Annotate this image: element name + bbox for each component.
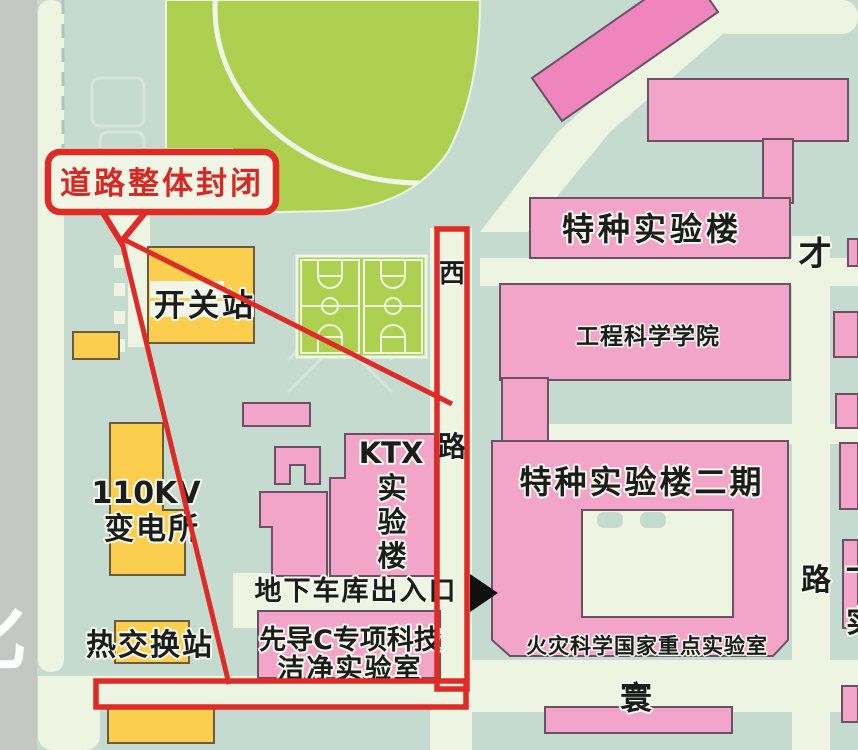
map-canvas: 特种实验楼 工程科学学院 特种实验楼二期 火灾科学国家重点实验室 KTX 实 验… bbox=[0, 0, 858, 750]
heat-exchange-label: 热交换站 bbox=[86, 628, 214, 663]
ktx-label-4: 楼 bbox=[377, 539, 406, 573]
bottom-road-right bbox=[464, 660, 858, 712]
edge-building bbox=[840, 443, 858, 509]
edge-building bbox=[834, 312, 858, 357]
west-road-char-2: 路 bbox=[438, 430, 467, 463]
fire-lab-label: 火灾科学国家重点实验室 bbox=[526, 634, 768, 658]
bottom-yellow-building bbox=[108, 706, 214, 743]
pilot-c-label-1: 先导C专项科技 bbox=[259, 625, 441, 656]
special-lab-label: 特种实验楼 bbox=[562, 210, 742, 248]
right-edge-partial-char: 实 bbox=[846, 605, 858, 640]
right-edge-road-char: 路 bbox=[801, 563, 832, 598]
basketball-courts bbox=[297, 256, 426, 357]
substation-label-2: 变电所 bbox=[104, 512, 200, 547]
road-stub bbox=[114, 311, 125, 324]
ktx-label-1: KTX bbox=[359, 436, 424, 470]
special-lab-column bbox=[763, 139, 793, 203]
special-lab-top-block bbox=[648, 79, 848, 141]
switch-station-label: 开关站 bbox=[154, 288, 256, 324]
special-lab-phase2-label: 特种实验楼二期 bbox=[519, 463, 764, 501]
edge-building bbox=[836, 394, 858, 428]
edge-building bbox=[848, 239, 858, 266]
right-edge-partial-stroke: 一 bbox=[846, 554, 858, 589]
left-vertical-road bbox=[38, 0, 64, 672]
left-road-partial-char: 化 bbox=[0, 592, 26, 680]
engineering-school-leg bbox=[502, 378, 548, 444]
engineering-school-label: 工程科学学院 bbox=[576, 323, 720, 350]
cai-road-char: 才 bbox=[799, 234, 832, 273]
road-stub bbox=[114, 283, 125, 296]
huan-road-char: 寰 bbox=[620, 679, 652, 717]
bottom-left-road bbox=[38, 695, 100, 750]
small-yellow-building bbox=[73, 332, 119, 359]
west-road-char-1: 西 bbox=[439, 259, 465, 289]
edge-building bbox=[842, 686, 858, 722]
courtyard-patch bbox=[640, 512, 666, 528]
garage-exit-label: 地下车库出入口 bbox=[255, 575, 458, 607]
ktx-label-2: 实 bbox=[377, 471, 406, 505]
closure-callout-label: 道路整体封闭 bbox=[60, 166, 264, 202]
ktx-label-3: 验 bbox=[377, 505, 406, 539]
courtyard-patch bbox=[597, 512, 623, 528]
top-right-road bbox=[712, 0, 858, 34]
campus-map: 特种实验楼 工程科学学院 特种实验楼二期 火灾科学国家重点实验室 KTX 实 验… bbox=[0, 0, 858, 750]
small-pink-bar bbox=[243, 403, 310, 426]
